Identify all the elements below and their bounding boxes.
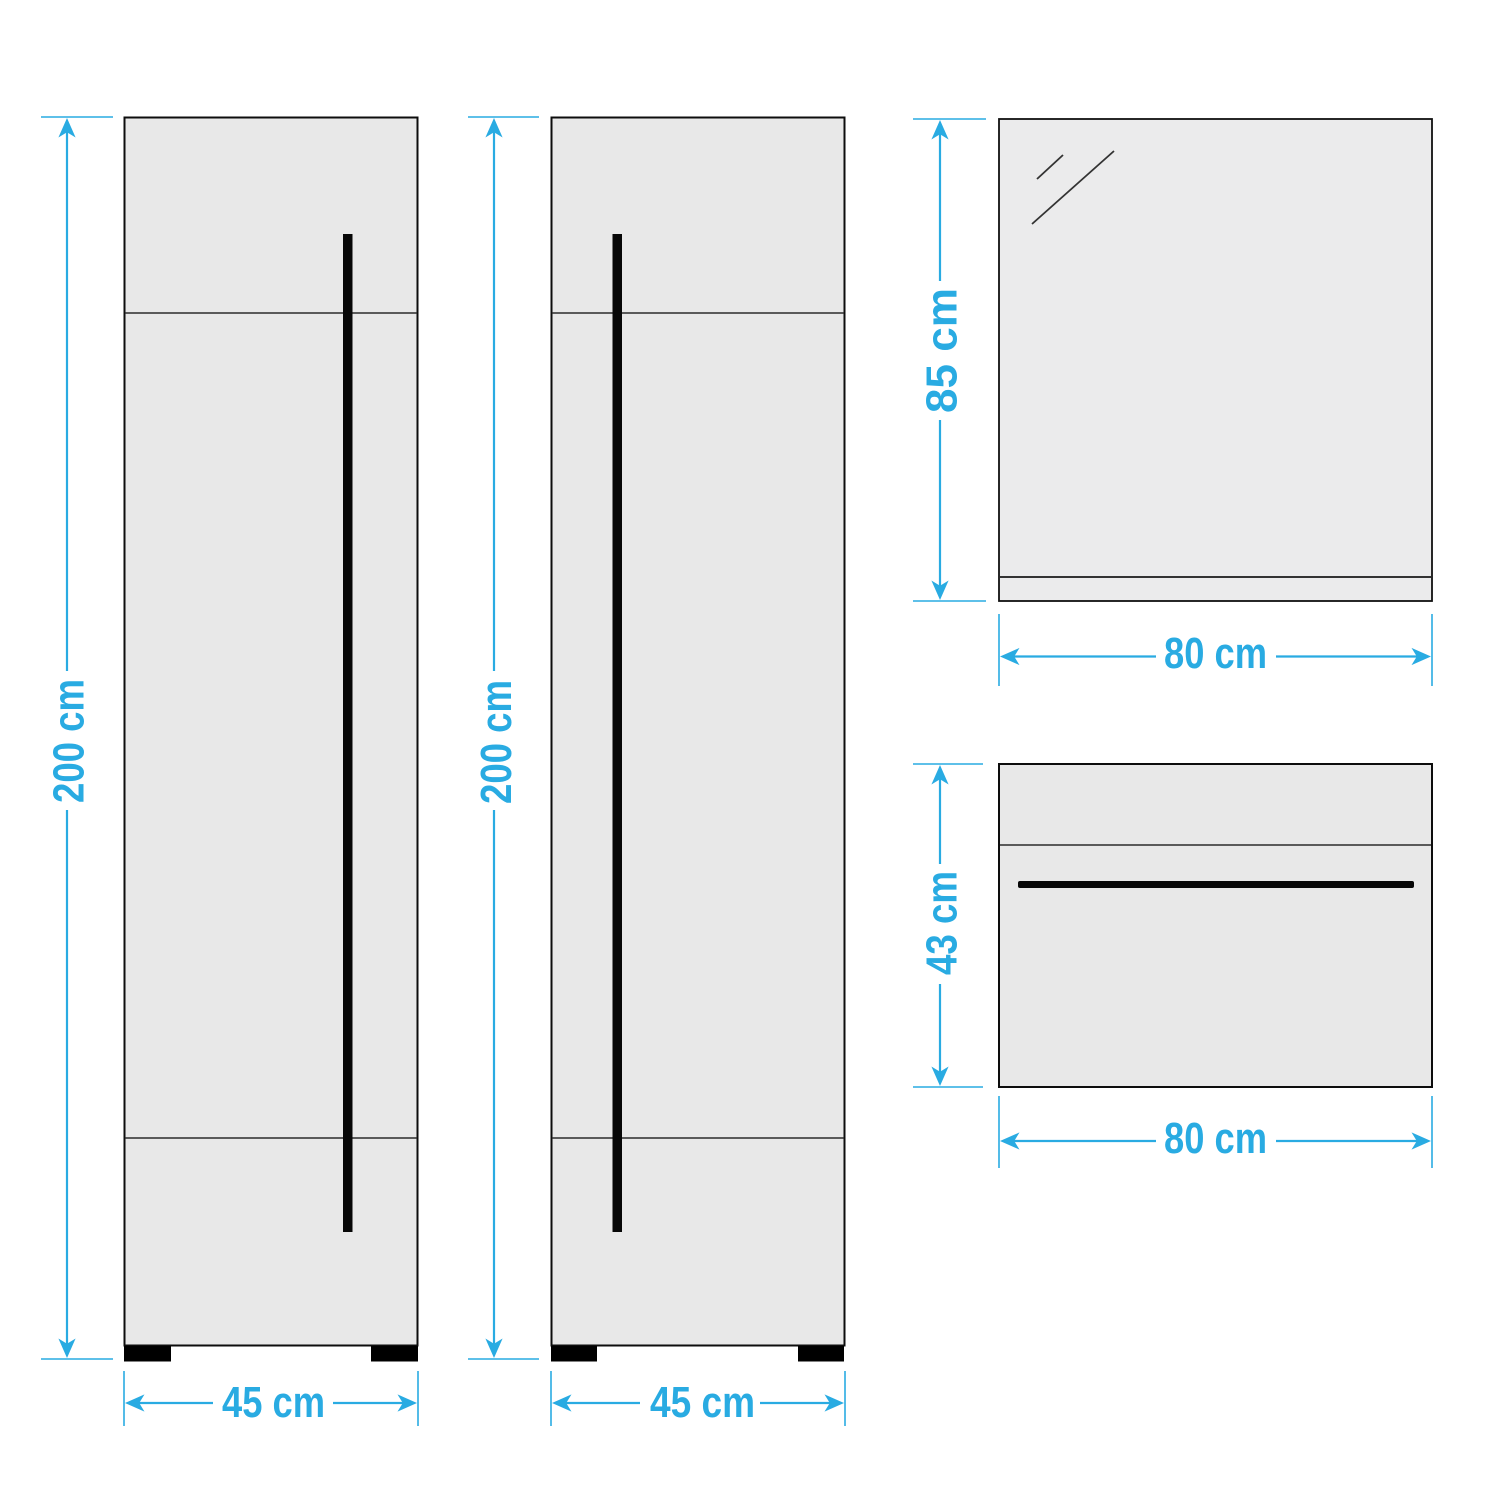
svg-text:45 cm: 45 cm — [222, 1378, 325, 1427]
svg-text:85 cm: 85 cm — [918, 288, 967, 413]
svg-text:200 cm: 200 cm — [45, 679, 94, 803]
svg-text:45 cm: 45 cm — [650, 1378, 755, 1427]
svg-text:80 cm: 80 cm — [1164, 629, 1267, 678]
svg-text:43 cm: 43 cm — [918, 871, 967, 975]
svg-text:200 cm: 200 cm — [472, 680, 521, 804]
svg-text:80 cm: 80 cm — [1164, 1114, 1267, 1163]
